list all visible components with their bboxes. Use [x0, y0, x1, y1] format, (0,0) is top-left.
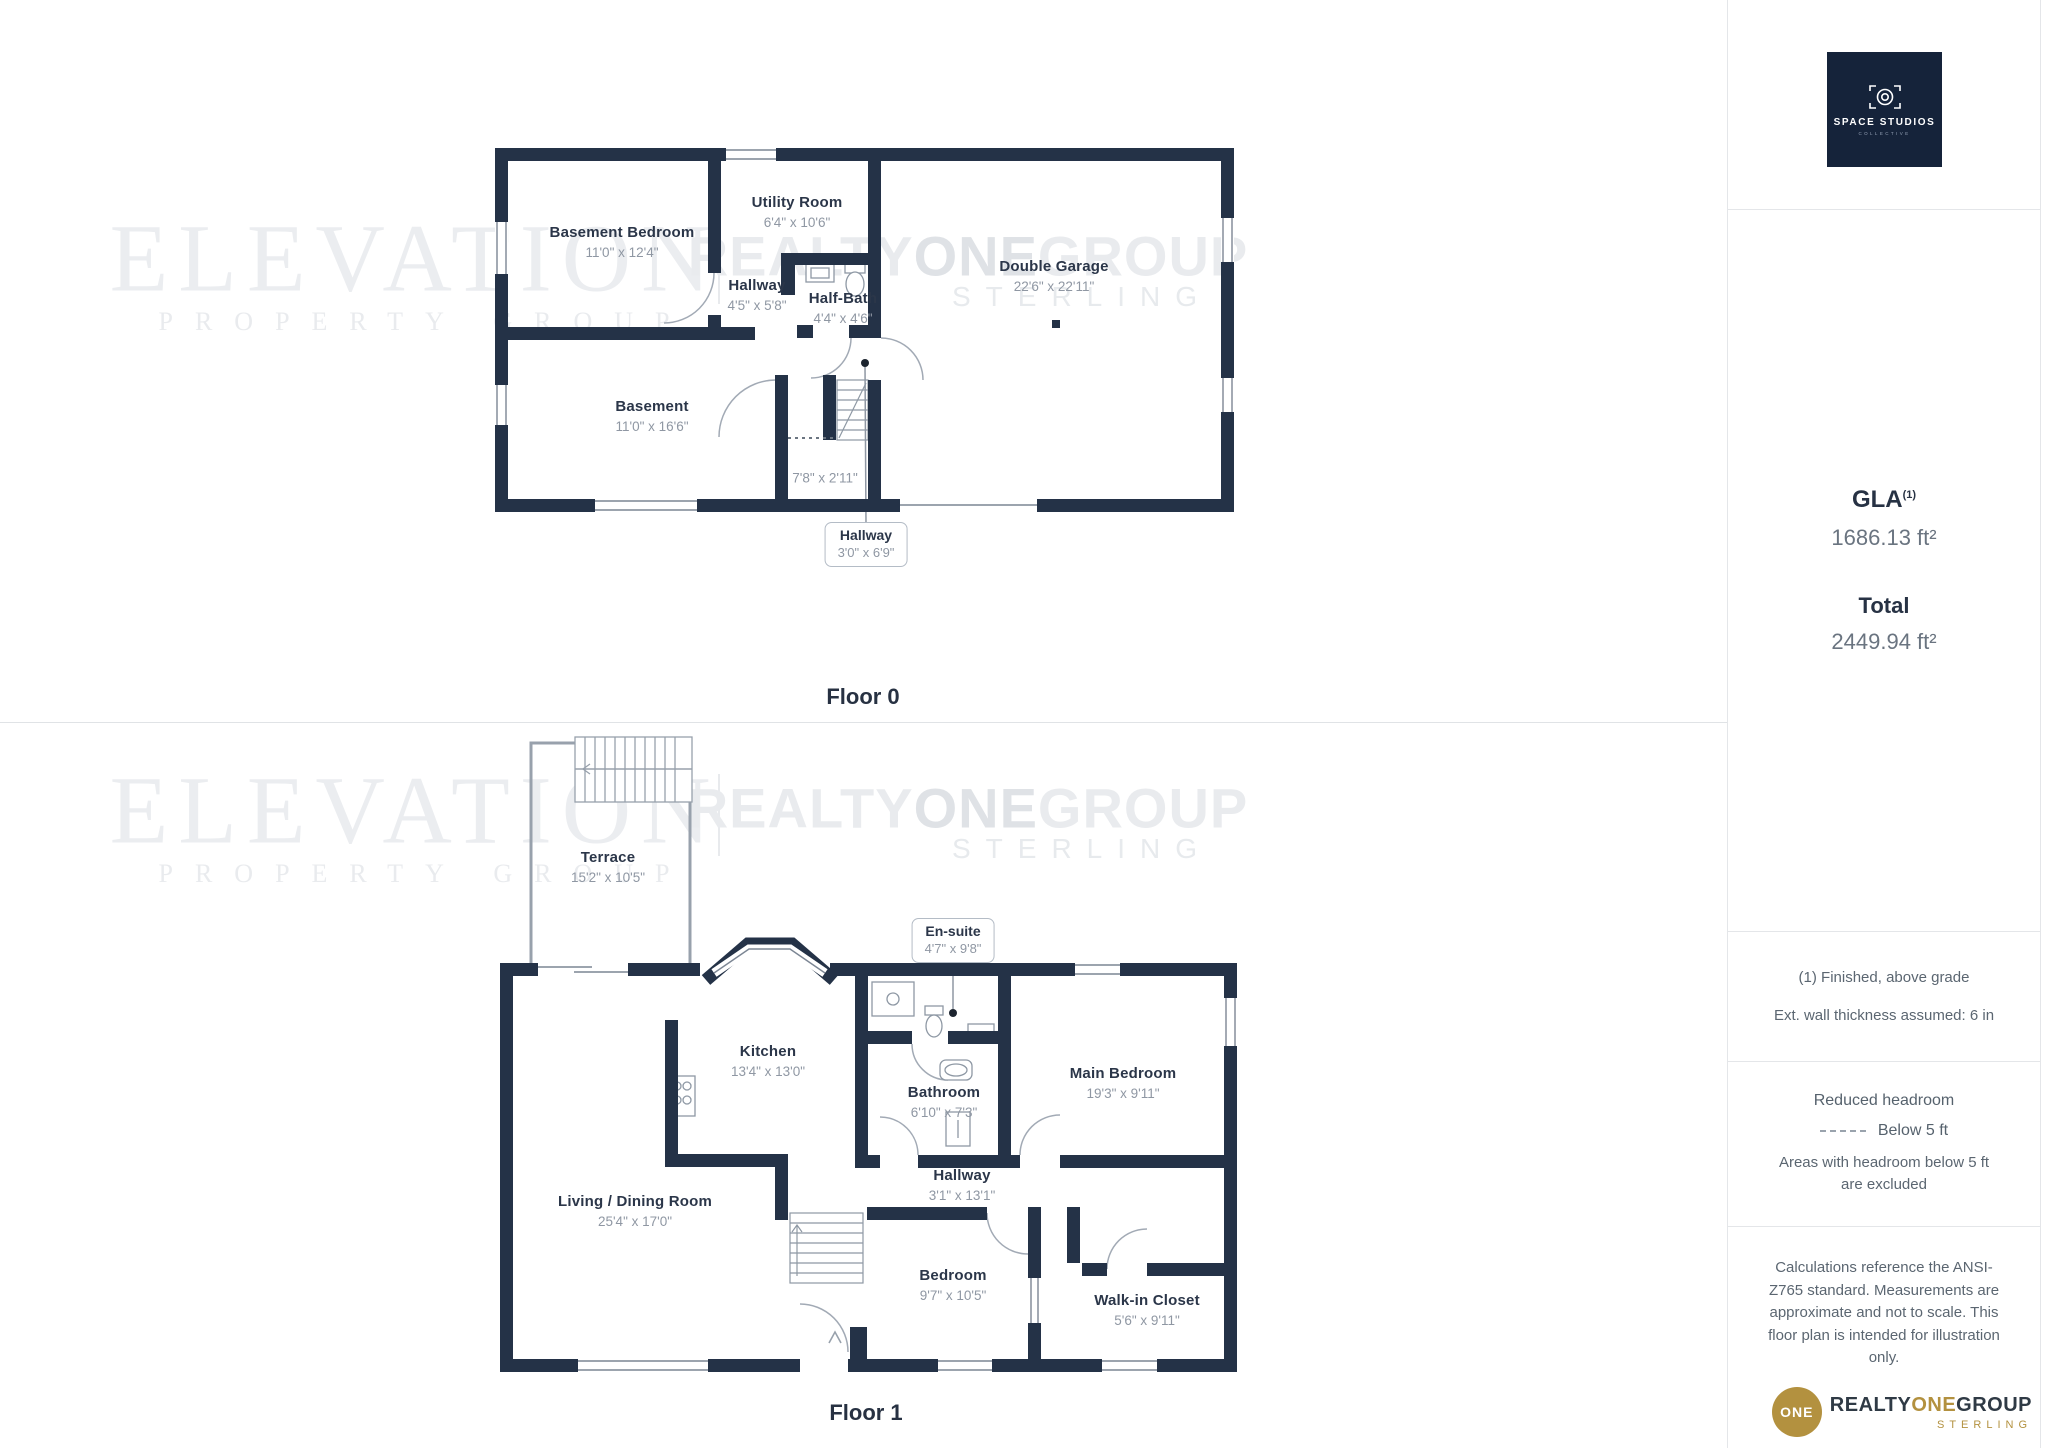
note-finished-above-grade: (1) Finished, above grade: [1799, 969, 1970, 986]
realty-one-group-text: REALTYONEGROUP: [1830, 1394, 2032, 1417]
main-stairs: [790, 1213, 863, 1283]
room-label-half-bath: Half-Bath 4'4" x 4'6": [809, 290, 877, 326]
realty-one-group-logo: ONE REALTYONEGROUP STERLING: [1770, 1383, 2034, 1441]
floor-0-title: Floor 0: [826, 684, 899, 710]
studio-logo-card: SPACE STUDIOS COLLECTIVE: [1728, 0, 2040, 210]
notes-card: (1) Finished, above grade Ext. wall thic…: [1728, 932, 2040, 1062]
headroom-legend: Below 5 ft: [1820, 1122, 1948, 1140]
disclaimer-text: Calculations reference the ANSI-Z765 sta…: [1762, 1257, 2006, 1370]
floor-1-plan-drawing: [0, 722, 1727, 1448]
room-label-bedroom: Bedroom 9'7" x 10'5": [919, 1267, 986, 1303]
callout-leader-dot: [861, 359, 869, 367]
room-label-hallway-0: Hallway 4'5" x 5'8": [727, 277, 786, 313]
entry-arrow: [829, 1332, 841, 1343]
studio-name: SPACE STUDIOS: [1834, 117, 1936, 128]
floor-1-title: Floor 1: [829, 1400, 902, 1426]
dim-under-stair-hall: 7'8" x 2'11": [792, 471, 858, 486]
headroom-note: Areas with headroom below 5 ft are exclu…: [1767, 1152, 2002, 1196]
room-label-double-garage: Double Garage 22'6" x 22'11": [999, 258, 1108, 294]
sterling-text: STERLING: [1830, 1419, 2032, 1431]
room-label-walk-in-closet: Walk-in Closet 5'6" x 9'11": [1094, 1292, 1200, 1328]
room-label-main-bedroom: Main Bedroom 19'3" x 9'11": [1070, 1065, 1177, 1101]
walls: [495, 148, 1234, 512]
one-circle-icon: ONE: [1772, 1387, 1822, 1437]
room-label-basement-bedroom: Basement Bedroom 11'0" x 12'4": [550, 224, 695, 260]
area-summary-card: GLA(1) 1686.13 ft² Total 2449.94 ft²: [1728, 210, 2040, 932]
note-wall-thickness: Ext. wall thickness assumed: 6 in: [1774, 1007, 1994, 1024]
room-label-basement: Basement 11'0" x 16'6": [615, 398, 688, 434]
total-label: Total: [1859, 593, 1910, 619]
camera-icon: [1868, 84, 1902, 110]
room-label-bathroom: Bathroom 6'10" x 7'3": [908, 1084, 980, 1120]
floorplan-page: ELEVATION PROPERTY GROUP REALTYONEGROUP …: [0, 0, 2048, 1448]
callout-en-suite: En-suite 4'7" x 9'8": [912, 918, 995, 963]
terrace-stairs: [575, 737, 692, 802]
space-studios-logo: SPACE STUDIOS COLLECTIVE: [1827, 52, 1942, 167]
bay-window: [706, 944, 834, 980]
headroom-card: Reduced headroom Below 5 ft Areas with h…: [1728, 1062, 2040, 1227]
basement-stairs: [837, 380, 868, 440]
studio-sub: COLLECTIVE: [1858, 131, 1910, 136]
room-label-kitchen: Kitchen 13'4" x 13'0": [731, 1043, 805, 1079]
headroom-legend-text: Below 5 ft: [1878, 1122, 1948, 1140]
info-sidebar: SPACE STUDIOS COLLECTIVE GLA(1) 1686.13 …: [1727, 0, 2041, 1448]
room-label-living-dining: Living / Dining Room 25'4" x 17'0": [558, 1193, 712, 1229]
callout-hallway: Hallway 3'0" x 6'9": [825, 522, 908, 567]
gla-label: GLA(1): [1852, 486, 1916, 514]
room-label-hallway-1: Hallway 3'1" x 13'1": [929, 1167, 996, 1203]
ensuite-leader-dot: [949, 1009, 957, 1017]
gla-value: 1686.13 ft²: [1831, 525, 1936, 551]
total-value: 2449.94 ft²: [1831, 629, 1936, 655]
room-label-terrace: Terrace 15'2" x 10'5": [571, 849, 645, 885]
floor-0-plan-drawing: [0, 0, 1727, 722]
door-arcs: [664, 273, 923, 437]
gla-footnote-marker: (1): [1903, 489, 1916, 501]
dashed-line-legend-icon: [1820, 1130, 1866, 1132]
room-label-utility-room: Utility Room 6'4" x 10'6": [752, 194, 843, 230]
headroom-title: Reduced headroom: [1814, 1092, 1955, 1110]
